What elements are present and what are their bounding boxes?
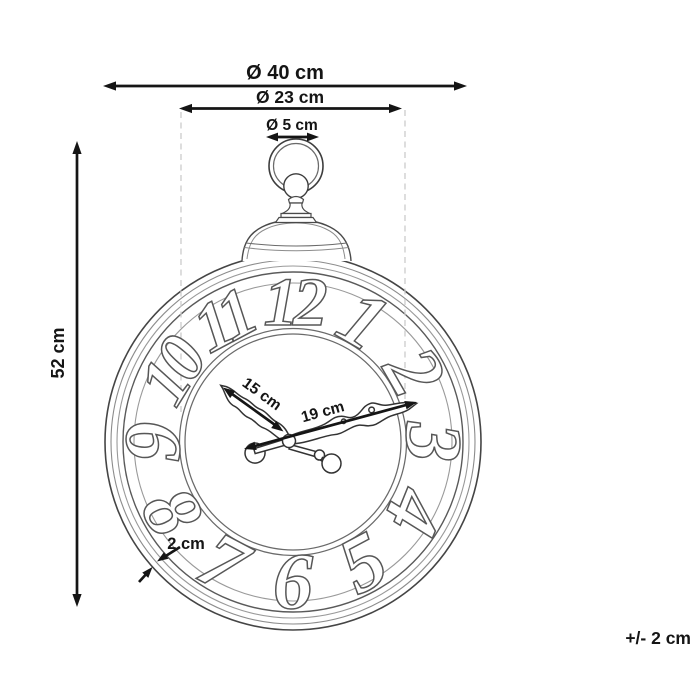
crown-dome <box>242 220 351 261</box>
height-label: 52 cm <box>48 327 68 378</box>
dial-numeral: 2 <box>366 332 463 412</box>
crown-finial <box>276 197 317 223</box>
dial-numeral: 6 <box>273 538 313 626</box>
finial-ball <box>284 174 308 198</box>
hanging-ring <box>269 139 323 198</box>
dial-numeral: 5 <box>325 515 402 611</box>
wall-clock-dimension-diagram: 12 1 2 3 4 5 6 7 8 9 10 11 <box>0 0 700 700</box>
dial-diameter-label: Ø 23 cm <box>256 87 324 107</box>
dial-numeral: 4 <box>366 475 463 547</box>
dial-numeral: 9 <box>109 422 197 462</box>
ring-diameter-dimension: Ø 5 cm <box>266 117 319 141</box>
tolerance-note: +/- 2 cm <box>625 628 691 648</box>
dial-diameter-dimension: Ø 23 cm <box>179 87 402 113</box>
ring-diameter-label: Ø 5 cm <box>266 117 318 134</box>
height-dimension: 52 cm <box>48 141 82 607</box>
dial-numeral: 12 <box>264 264 327 340</box>
outer-diameter-label: Ø 40 cm <box>246 62 324 84</box>
dial-numeral: 3 <box>389 421 477 462</box>
dial-numeral: 7 <box>185 515 264 613</box>
dial-numeral: 1 <box>324 273 403 369</box>
hand-counterweight <box>289 445 341 474</box>
clock-drawing: 12 1 2 3 4 5 6 7 8 9 10 11 <box>105 110 481 630</box>
diagram-canvas: 12 1 2 3 4 5 6 7 8 9 10 11 <box>0 0 700 700</box>
